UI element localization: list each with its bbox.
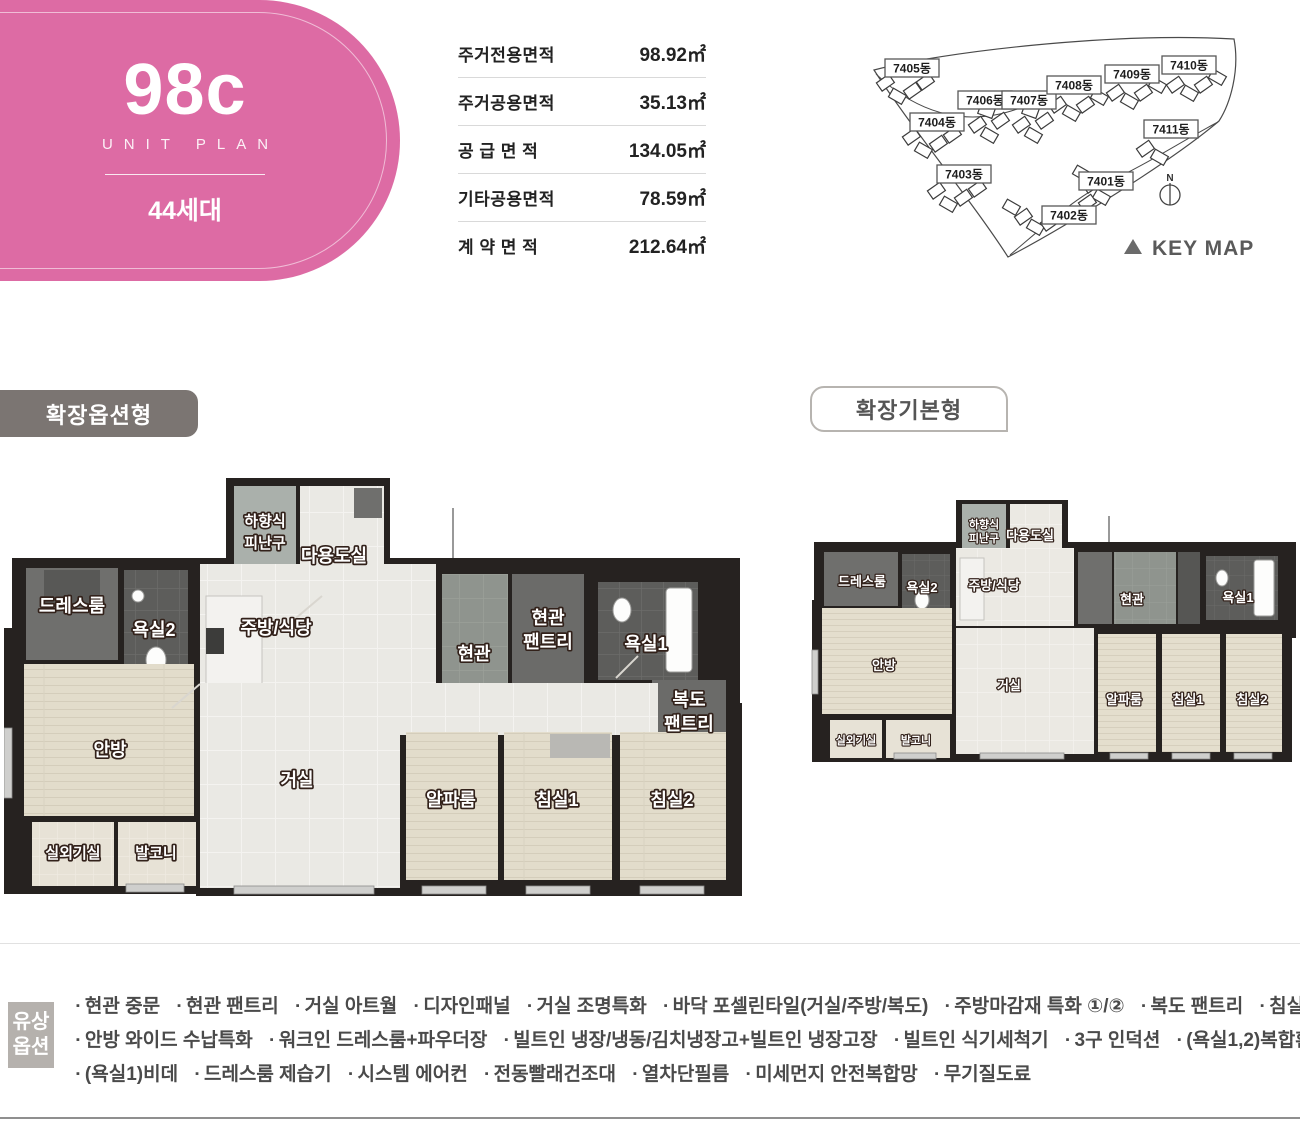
tab-expansion-basic-type[interactable]: 확장기본형 [810,386,1008,432]
room-label: 주방/식당 [968,578,1019,593]
room-label: 안방 [93,740,127,760]
bullet-icon: ▪ [76,1068,80,1080]
area-value: 98.92㎡ [639,40,706,67]
table-row: 공 급 면 적 134.05㎡ [458,126,706,174]
bullet-icon: ▪ [945,1000,949,1012]
room-label: 드레스룸 [39,596,105,616]
bullet-icon: ▪ [76,1034,80,1046]
building-label: 7410동 [1170,59,1208,73]
paid-options-title-line: 유상 [13,1010,50,1035]
room-label: 거실 [997,678,1021,693]
building-label: 7409동 [1113,68,1151,82]
bullet-icon: ▪ [935,1068,939,1080]
option-item: ▪전동빨래건조대 [485,1064,616,1085]
room-label: 침실2 [650,790,693,810]
north-compass-icon: N [1160,173,1180,205]
floor-plan-expansion-option: 하향식 피난구 다용도실 드레스룸 욕실2 주방/식당 현관 현관 팬트리 욕실… [4,478,746,900]
svg-text:KEY MAP: KEY MAP [1152,237,1254,260]
keymap-building-unit [927,182,945,199]
room-label: 다용도실 [1006,528,1054,543]
room-label: 피난구 [244,535,286,552]
paid-options-list: ▪현관 중문▪현관 팬트리▪거실 아트월▪디자인패널▪거실 조명특화▪바닥 포셀… [76,990,1291,1092]
room-label: 침실1 [535,790,578,810]
option-item: ▪디자인패널 [414,996,510,1017]
option-item: ▪드레스룸 제습기 [195,1064,332,1085]
keymap-caption: KEY MAP [1124,237,1254,260]
area-value: 212.64㎡ [629,232,706,259]
bullet-icon: ▪ [504,1034,508,1046]
room-label: 현관 [457,644,491,664]
option-item: ▪현관 중문 [76,996,160,1017]
option-line: ▪안방 와이드 수납특화▪워크인 드레스룸+파우더장▪빌트인 냉장/냉동/김치냉… [76,1024,1291,1058]
tab-expansion-option-type[interactable]: 확장옵션형 [0,390,198,437]
room-label: 욕실1 [624,634,667,654]
option-item: ▪빌트인 냉장/냉동/김치냉장고+빌트인 냉장고장 [504,1030,877,1051]
room-label: 주방/식당 [240,618,312,638]
unit-code: 98c [123,54,246,126]
option-item: ▪시스템 에어컨 [349,1064,468,1085]
area-value: 35.13㎡ [639,88,706,115]
page-bottom-divider [0,1117,1300,1119]
bullet-icon: ▪ [664,1000,668,1012]
unit-subtitle: UNIT PLAN [102,136,279,153]
option-item: ▪거실 조명특화 [528,996,647,1017]
room-label: 하향식 [969,517,999,531]
bullet-icon: ▪ [195,1068,199,1080]
area-value: 134.05㎡ [629,136,706,163]
bullet-icon: ▪ [1142,1000,1146,1012]
room-label: 복도 [672,690,705,710]
building-label: 7411동 [1152,123,1189,137]
room-label: 침실2 [1236,692,1267,707]
bullet-icon: ▪ [349,1068,353,1080]
option-item: ▪바닥 포셀린타일(거실/주방/복도) [664,996,929,1017]
room-label: 욕실1 [1222,590,1253,605]
building-label: 7403동 [945,168,983,182]
room-label: 알파룸 [1106,692,1142,707]
option-item: ▪(욕실1)비데 [76,1064,178,1085]
option-item: ▪현관 팬트리 [177,996,279,1017]
option-item: ▪워크인 드레스룸+파우더장 [270,1030,488,1051]
area-label: 공 급 면 적 [458,137,538,162]
keymap-building-unit [1035,112,1053,129]
room-label: 드레스룸 [838,574,886,589]
room-label: 욕실2 [132,620,175,640]
table-row: 계 약 면 적 212.64㎡ [458,222,706,269]
triangle-icon [1124,239,1142,254]
room-label: 다용도실 [301,546,367,566]
paid-options-title: 유상 옵션 [8,1002,54,1068]
room-label: 실외기실 [836,733,876,747]
bullet-icon: ▪ [1066,1034,1070,1046]
option-item: ▪침실1 붙박이장 [1260,996,1300,1017]
area-label: 주거전용면적 [458,41,555,66]
building-label: 7405동 [893,62,931,76]
building-label: 7402동 [1050,209,1088,223]
room-label: 알파룸 [426,790,476,810]
option-item: ▪열차단필름 [633,1064,729,1085]
bullet-icon: ▪ [296,1000,300,1012]
building-label: 7404동 [918,116,956,130]
option-item: ▪(욕실1,2)복합환풍기 [1177,1030,1300,1051]
option-line: ▪현관 중문▪현관 팬트리▪거실 아트월▪디자인패널▪거실 조명특화▪바닥 포셀… [76,990,1291,1024]
bullet-icon: ▪ [633,1068,637,1080]
svg-text:N: N [1166,173,1173,184]
section-divider [0,943,1300,944]
option-item: ▪주방마감재 특화 ①/② [945,996,1124,1017]
keymap-building-unit [1002,199,1020,215]
room-label: 피난구 [969,531,999,545]
bullet-icon: ▪ [1177,1034,1181,1046]
bullet-icon: ▪ [414,1000,418,1012]
room-label: 욕실2 [906,580,937,595]
keymap-building-unit [1024,127,1042,143]
area-table: 주거전용면적 98.92㎡ 주거공용면적 35.13㎡ 공 급 면 적 134.… [458,30,706,269]
room-label: 발코니 [901,733,931,747]
paid-options-title-line: 옵션 [13,1035,50,1060]
area-label: 기타공용면적 [458,185,555,210]
room-label: 실외기실 [45,844,100,862]
room-label: 발코니 [135,845,176,862]
floor-plan-expansion-basic: 하향식 피난구 다용도실 드레스룸 욕실2 주방/식당 현관 욕실1 안방 거실… [810,500,1300,768]
table-row: 주거전용면적 98.92㎡ [458,30,706,78]
bullet-icon: ▪ [270,1034,274,1046]
area-label: 주거공용면적 [458,89,555,114]
badge-divider [105,174,265,175]
option-item: ▪안방 와이드 수납특화 [76,1030,253,1051]
building-label: 7406동 [966,94,1004,108]
bullet-icon: ▪ [528,1000,532,1012]
room-label: 현관 [531,608,565,628]
building-label: 7401동 [1087,175,1125,189]
bullet-icon: ▪ [895,1034,899,1046]
option-item: ▪복도 팬트리 [1142,996,1244,1017]
unit-plan-page: 98c UNIT PLAN 44세대 주거전용면적 98.92㎡ 주거공용면적 … [0,0,1300,1123]
area-label: 계 약 면 적 [458,233,538,258]
option-item: ▪빌트인 식기세척기 [895,1030,1049,1051]
option-item: ▪무기질도료 [935,1064,1031,1085]
area-value: 78.59㎡ [639,184,706,211]
room-label: 현관 [1120,592,1144,607]
bullet-icon: ▪ [76,1000,80,1012]
bullet-icon: ▪ [746,1068,750,1080]
building-label: 7408동 [1055,79,1093,93]
table-row: 기타공용면적 78.59㎡ [458,174,706,222]
building-label: 7407동 [1010,94,1048,108]
room-label: 침실1 [1172,692,1203,707]
site-key-map: 7405동7404동7403동7406동7407동7408동7409동7410동… [852,26,1257,276]
bullet-icon: ▪ [485,1068,489,1080]
bullet-icon: ▪ [1260,1000,1264,1012]
option-item: ▪3구 인덕션 [1066,1030,1161,1051]
unit-type-badge: 98c UNIT PLAN 44세대 [0,0,400,281]
option-item: ▪미세먼지 안전복합망 [746,1064,918,1085]
bullet-icon: ▪ [177,1000,181,1012]
table-row: 주거공용면적 35.13㎡ [458,78,706,126]
household-count: 44세대 [148,191,222,227]
room-label: 하향식 [244,513,285,530]
keymap-building-unit [980,127,998,143]
room-label: 팬트리 [664,714,714,734]
option-item: ▪거실 아트월 [296,996,398,1017]
room-label: 거실 [280,770,313,790]
room-label: 팬트리 [523,632,573,652]
option-line: ▪(욕실1)비데▪드레스룸 제습기▪시스템 에어컨▪전동빨래건조대▪열차단필름▪… [76,1058,1291,1092]
room-label: 안방 [872,658,896,673]
